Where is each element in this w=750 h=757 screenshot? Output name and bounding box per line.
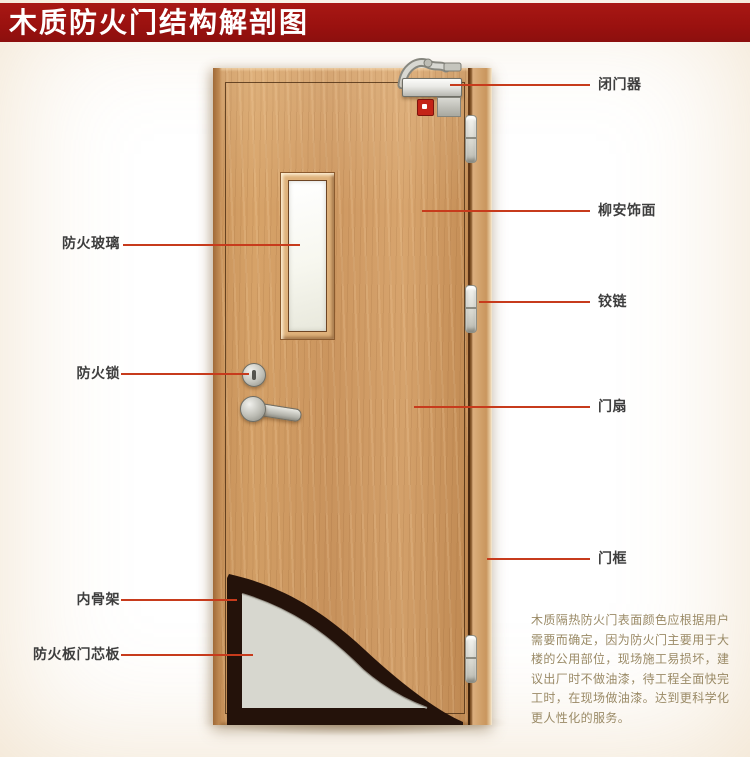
label-door-leaf: 门扇 xyxy=(598,399,627,415)
label-core-board: 防火板门芯板 xyxy=(18,647,120,663)
door-handle-rose xyxy=(240,396,266,422)
note-line: 木质隔热防火门表面颜色应根据用户 xyxy=(531,612,729,628)
door-leaf-edge xyxy=(213,68,222,725)
label-inner-skeleton: 内骨架 xyxy=(18,592,120,608)
hinge-knuckle-line xyxy=(466,657,476,659)
cutaway-section xyxy=(227,570,465,725)
callout-line-door-frame xyxy=(487,558,590,560)
hinge-middle xyxy=(465,285,477,333)
callout-line-fire-lock xyxy=(121,373,249,375)
hinge-bottom xyxy=(465,635,477,683)
closer-mount-plate xyxy=(437,97,461,117)
callout-line-door-closer xyxy=(450,84,590,86)
note-line: 需要而确定，因为防火门主要用于大 xyxy=(531,632,729,648)
fire-door-illustration xyxy=(213,68,492,725)
poster: 木质防火门结构解剖图 xyxy=(0,0,750,757)
label-lauan-veneer: 柳安饰面 xyxy=(598,203,656,219)
page-title: 木质防火门结构解剖图 xyxy=(9,3,309,42)
callout-line-core-board xyxy=(121,654,253,656)
fire-glass-window xyxy=(280,172,335,340)
callout-line-fire-glass xyxy=(123,244,300,246)
door-closer xyxy=(402,78,462,97)
label-door-frame: 门框 xyxy=(598,551,627,567)
hinge-knuckle-line xyxy=(466,307,476,309)
label-door-closer: 闭门器 xyxy=(598,77,642,93)
label-fire-lock: 防火锁 xyxy=(18,366,120,382)
door-frame-jamb xyxy=(470,68,492,725)
hinge-knuckle-line xyxy=(466,137,476,139)
keyhole xyxy=(252,370,256,380)
hinge-top xyxy=(465,115,477,163)
fire-lock-cylinder xyxy=(242,363,266,387)
note-line: 更人性化的服务。 xyxy=(531,710,630,726)
alarm-indicator-dot xyxy=(422,104,427,109)
label-hinge: 铰链 xyxy=(598,294,627,310)
callout-line-lauan-veneer xyxy=(422,210,590,212)
callout-line-door-leaf xyxy=(414,406,590,408)
label-fire-glass: 防火玻璃 xyxy=(18,236,120,252)
door-leaf xyxy=(213,68,470,725)
note-line: 议出厂时不做油漆，待工程全面快完 xyxy=(531,671,729,687)
glass-pane xyxy=(288,180,327,332)
title-banner: 木质防火门结构解剖图 xyxy=(0,3,750,42)
alarm-indicator xyxy=(417,99,434,116)
callout-line-inner-skeleton xyxy=(121,599,237,601)
note-line: 工时，在现场做油漆。达到更科学化 xyxy=(531,690,729,706)
note-line: 楼的公用部位，现场施工易损坏，建 xyxy=(531,651,729,667)
callout-line-hinge xyxy=(479,301,590,303)
